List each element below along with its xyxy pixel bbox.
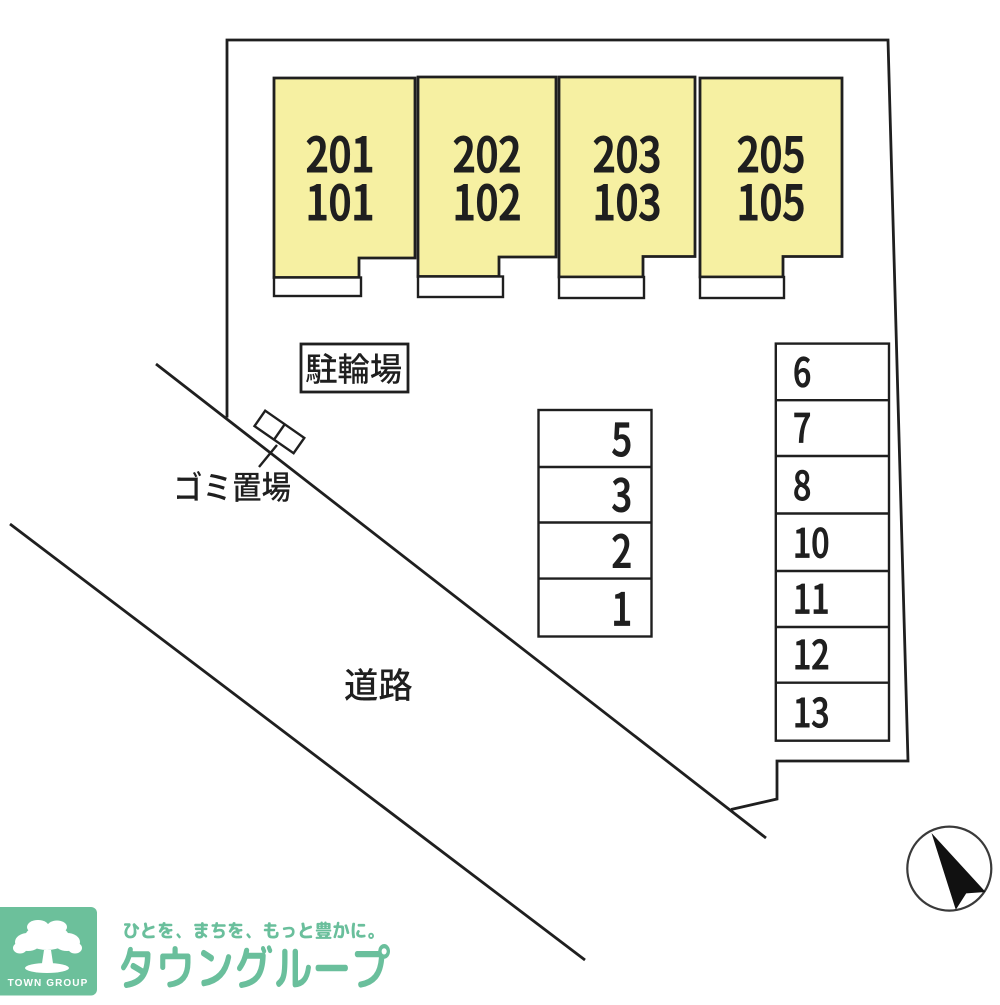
svg-text:TOWN GROUP: TOWN GROUP: [8, 978, 89, 989]
